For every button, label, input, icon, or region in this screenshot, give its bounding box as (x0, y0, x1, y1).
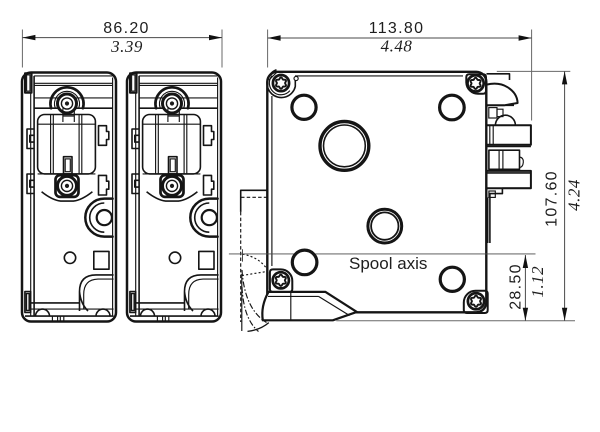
svg-text:107.60: 107.60 (544, 170, 561, 227)
svg-text:Spool axis: Spool axis (349, 254, 427, 273)
svg-text:1.12: 1.12 (528, 266, 547, 298)
svg-text:86.20: 86.20 (103, 20, 150, 37)
svg-text:4.48: 4.48 (381, 36, 413, 55)
svg-text:3.39: 3.39 (110, 37, 143, 56)
svg-text:4.24: 4.24 (565, 179, 584, 211)
svg-text:113.80: 113.80 (369, 20, 425, 37)
svg-text:28.50: 28.50 (508, 263, 525, 310)
